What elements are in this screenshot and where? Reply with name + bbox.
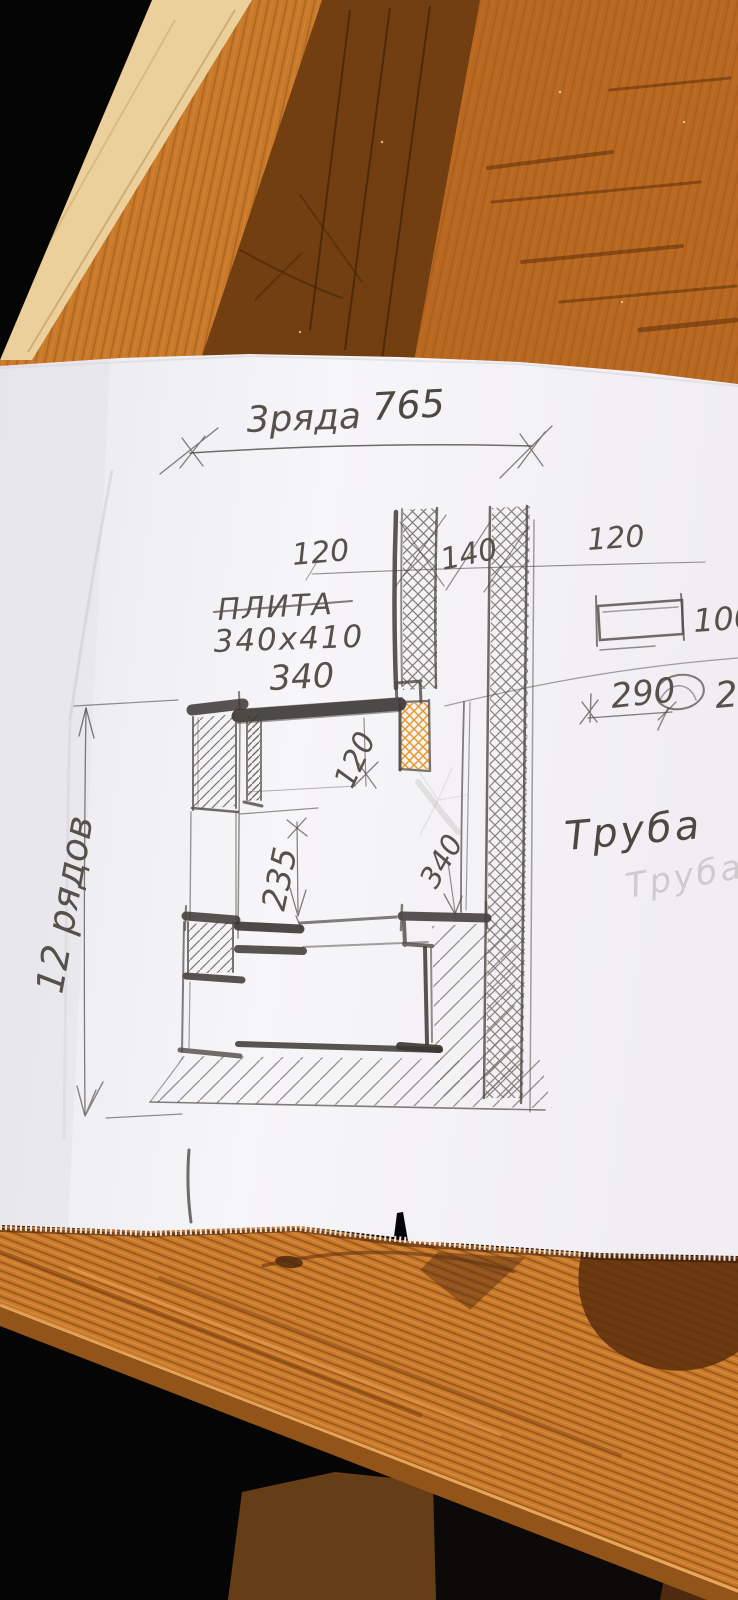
- wood-table-top: [0, 0, 738, 400]
- photo-of-stove-sketch: 3ряда 765 120 140 120 ПЛИТА 340х410 340 …: [0, 0, 738, 1600]
- right-chamber-hatch: [432, 922, 516, 1098]
- paper-sheet: [0, 354, 738, 1258]
- plate-size-label: 340х410: [213, 619, 365, 660]
- rows-3-label: 3ряда: [246, 396, 362, 441]
- dim-2-cutoff-label: 2: [713, 674, 738, 717]
- brick-100-label: 100: [692, 598, 738, 640]
- dim-340-label: 340: [268, 656, 335, 699]
- cleanout-orange-hatch: [401, 703, 429, 769]
- narrow-strip-hatch: [248, 715, 260, 801]
- photo-canvas: 3ряда 765 120 140 120 ПЛИТА 340х410 340 …: [0, 0, 738, 1600]
- dim-765-label: 765: [371, 381, 446, 429]
- dim-120-right-label: 120: [586, 519, 646, 558]
- left-upper-block-hatch: [194, 714, 235, 810]
- floor-patch: [228, 1472, 450, 1600]
- left-lower-block-hatch: [189, 922, 232, 974]
- dim-290-label: 290: [609, 670, 678, 717]
- dim-120-left-label: 120: [291, 533, 351, 573]
